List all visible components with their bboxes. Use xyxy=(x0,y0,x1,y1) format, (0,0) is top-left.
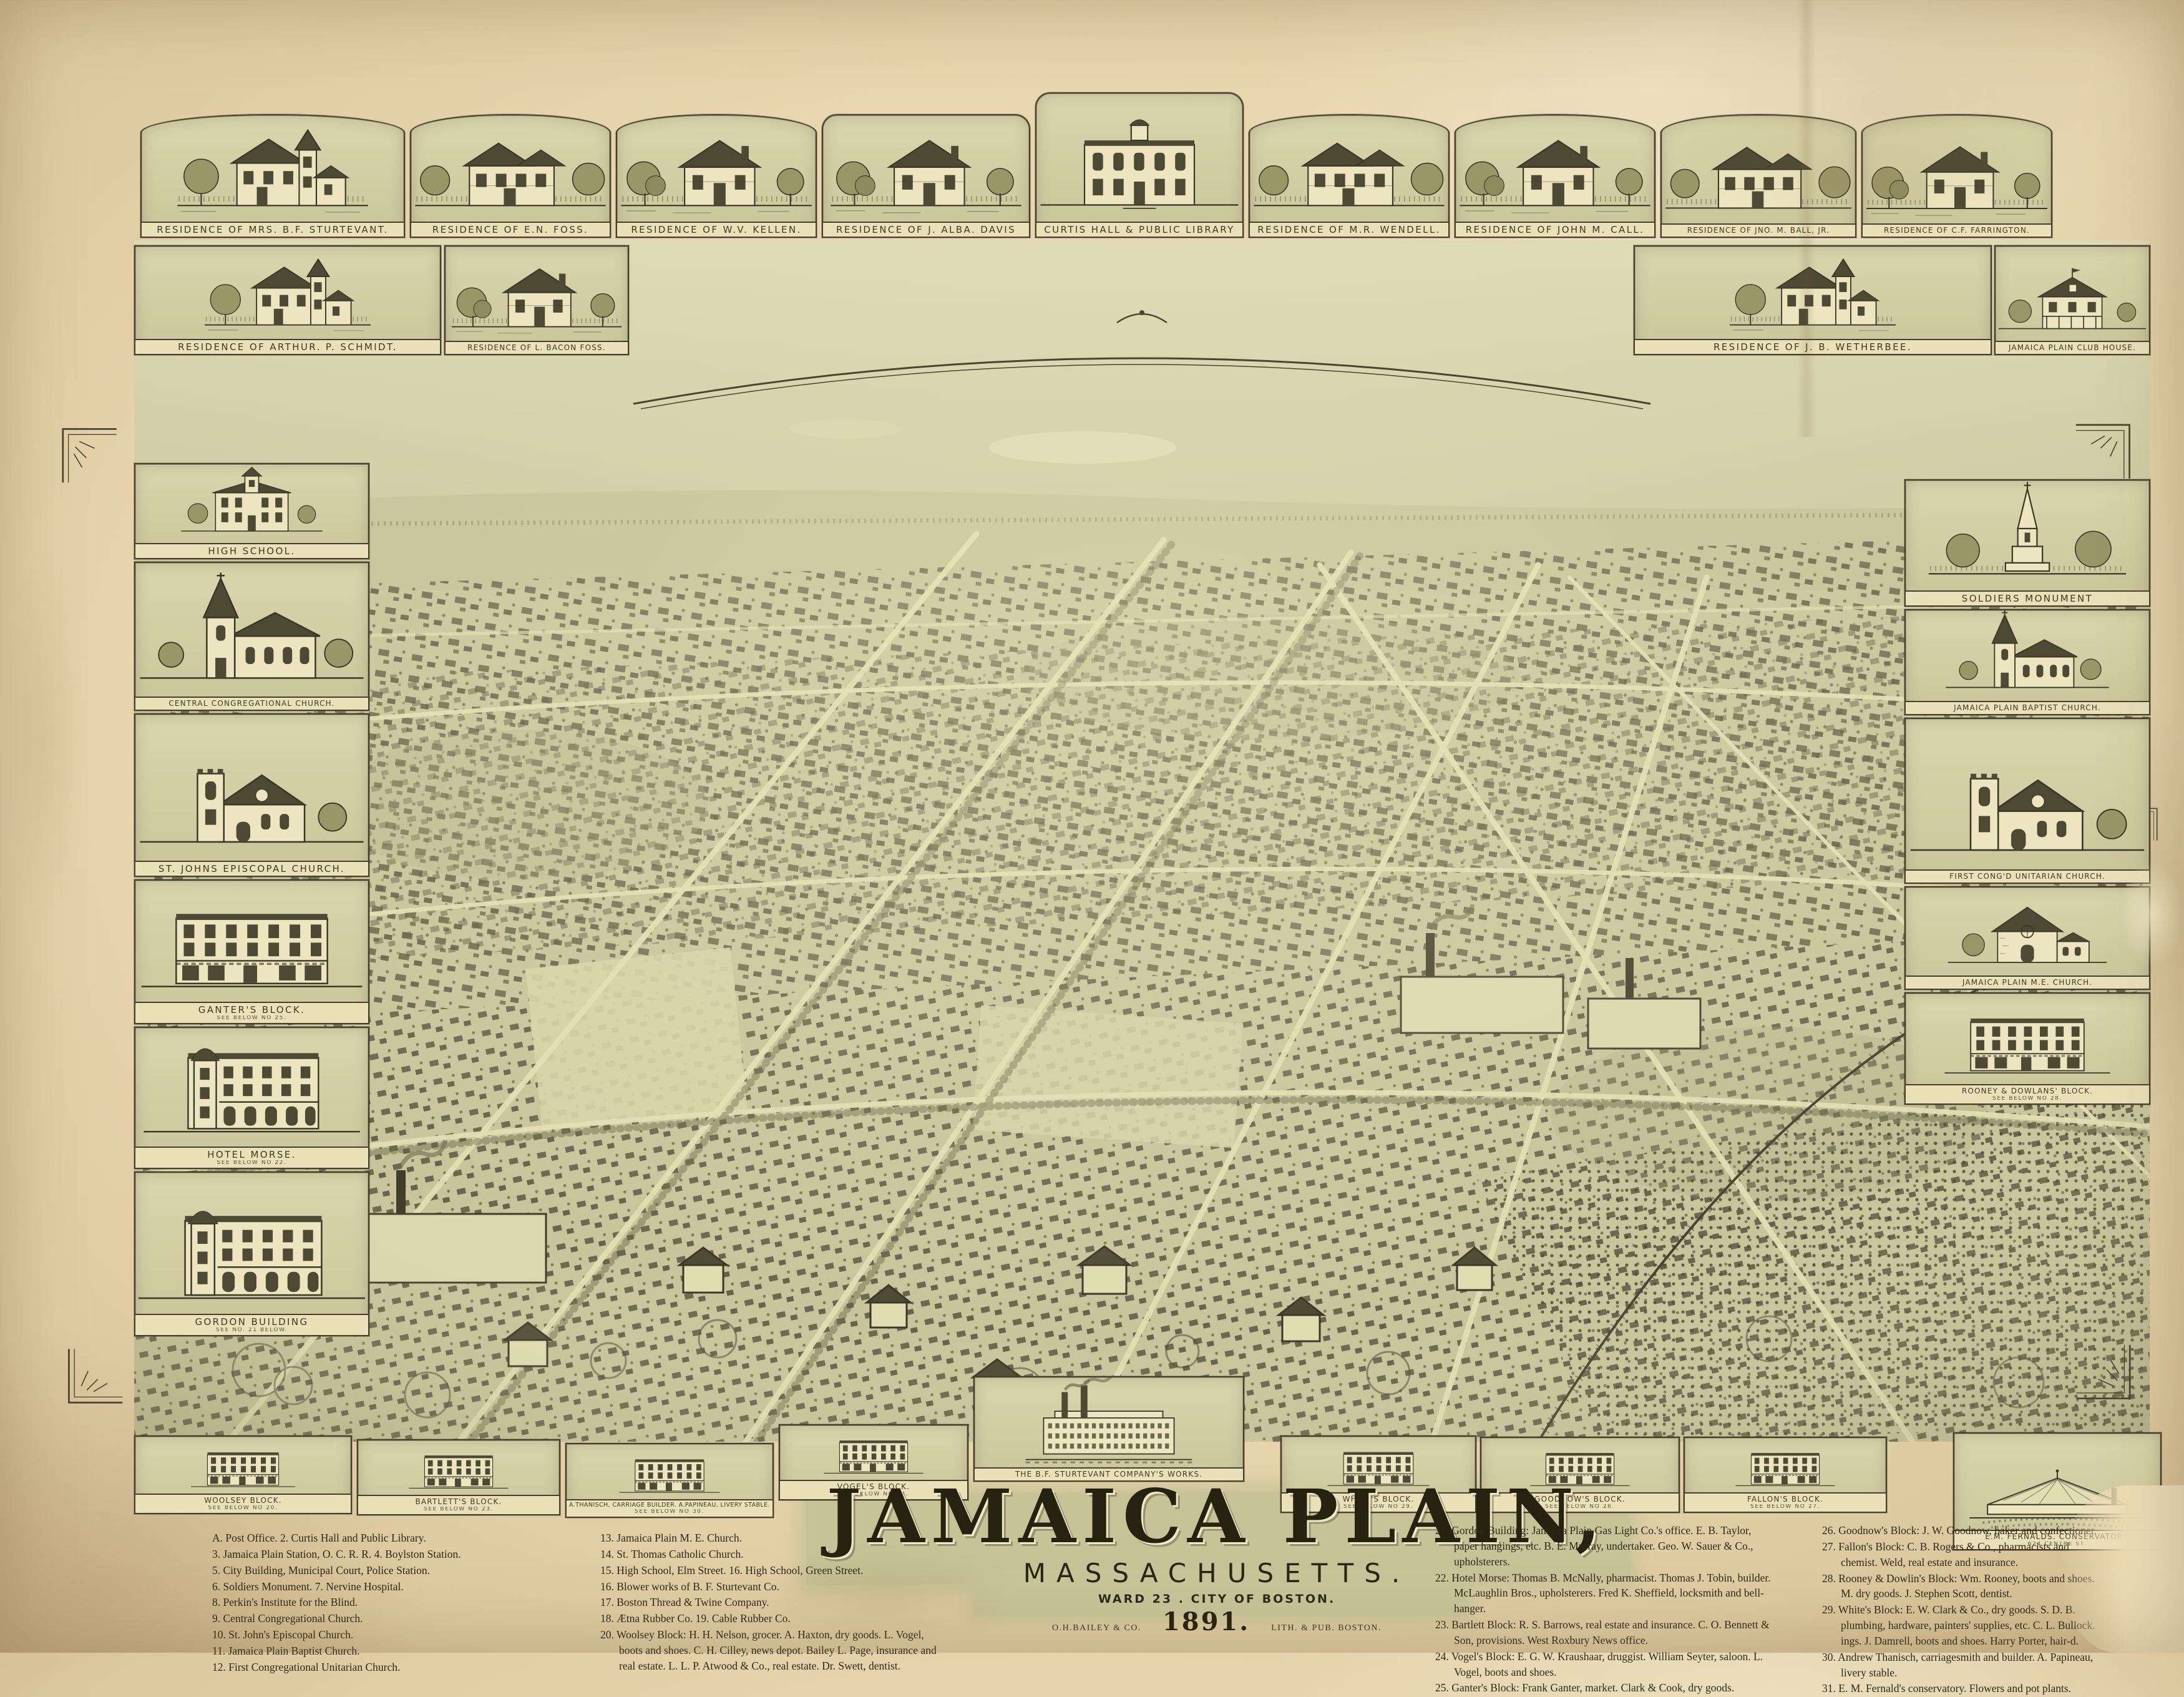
vignette-high-school: HIGH SCHOOL. xyxy=(134,463,369,559)
residence-illustration-icon xyxy=(446,247,628,341)
map-year: 1891. xyxy=(1163,1607,1250,1636)
commercial-block-illustration-icon xyxy=(135,1437,351,1494)
vignette-subcaption: SEE BELOW NO 27. xyxy=(1686,1504,1884,1510)
vignette-caption: A.THANISCH, CARRIAGE BUILDER. A.PAPINEAU… xyxy=(568,1502,771,1509)
vignette-fallons-block: FALLON'S BLOCK. SEE BELOW NO 27. xyxy=(1684,1437,1887,1513)
vignette-me-church: JAMAICA PLAIN M.E. CHURCH. xyxy=(1904,886,2150,990)
vignette-caption: GANTER'S BLOCK. xyxy=(137,1005,367,1015)
caption-strip: CURTIS HALL & PUBLIC LIBRARY xyxy=(1036,222,1242,237)
vignette-subcaption: SEE BELOW NO 28. xyxy=(1907,1096,2148,1102)
vignette-caption: RESIDENCE OF JNO. M. BALL, JR. xyxy=(1663,227,1854,235)
legend-entry: 11. Jamaica Plain Baptist Church. xyxy=(212,1643,543,1659)
caption-strip: HOTEL MORSE. SEE BELOW NO 22. xyxy=(135,1147,368,1168)
vignette-caption: BARTLETT'S BLOCK. xyxy=(359,1498,558,1507)
vignette-ganters-block: GANTER'S BLOCK. SEE BELOW NO 25. xyxy=(134,879,369,1024)
vignette-caption: FIRST CONG'D UNITARIAN CHURCH. xyxy=(1907,873,2148,881)
birdseye-map-illustration xyxy=(134,240,2150,1442)
legend-entry: 18. Ætna Rubber Co. 19. Cable Rubber Co. xyxy=(600,1611,937,1626)
monument-illustration-icon xyxy=(1906,481,2149,590)
caption-strip: RESIDENCE OF JOHN M. CALL. xyxy=(1456,222,1654,237)
vignette-caption: RESIDENCE OF J. B. WETHERBEE. xyxy=(1636,342,1989,353)
vignette-soldiers-monument: SOLDIERS MONUMENT xyxy=(1904,479,2150,607)
building-illustration-icon xyxy=(135,1173,368,1314)
caption-strip: JAMAICA PLAIN M.E. CHURCH. xyxy=(1906,976,2149,989)
residence-illustration-icon xyxy=(411,115,610,222)
caption-strip: GORDON BUILDING SEE NO. 21 BELOW. xyxy=(135,1314,368,1335)
vignette-caption: JAMAICA PLAIN CLUB HOUSE. xyxy=(1997,344,2148,353)
vignette-caption: CURTIS HALL & PUBLIC LIBRARY xyxy=(1038,225,1241,235)
caption-strip: RESIDENCE OF JNO. M. BALL, JR. xyxy=(1662,223,1855,237)
vignette-subcaption: SEE BELOW NO 25. xyxy=(137,1015,367,1022)
vignette-bartletts-block: BARTLETT'S BLOCK. SEE BELOW NO 23. xyxy=(357,1439,560,1515)
legend-entry: 13. Jamaica Plain M. E. Church. xyxy=(600,1530,937,1546)
vignette-subcaption: SEE BELOW NO 30. xyxy=(568,1509,771,1515)
vignette-residence-schmidt: RESIDENCE OF ARTHUR. P. SCHMIDT. xyxy=(134,245,441,355)
vignette-unitarian-church: FIRST CONG'D UNITARIAN CHURCH. xyxy=(1904,718,2150,884)
legend-entry: A. Post Office. 2. Curtis Hall and Publi… xyxy=(212,1530,543,1546)
caption-strip: RESIDENCE OF J. ALBA. DAVIS xyxy=(823,222,1029,237)
caption-strip: BARTLETT'S BLOCK. SEE BELOW NO 23. xyxy=(358,1495,559,1514)
vignette-caption: WOOLSEY BLOCK. xyxy=(137,1497,349,1505)
vignette-caption: JAMAICA PLAIN BAPTIST CHURCH. xyxy=(1907,704,2148,713)
vignette-caption: FALLON'S BLOCK. xyxy=(1686,1495,1884,1504)
vignette-caption: SOLDIERS MONUMENT xyxy=(1907,594,2148,604)
caption-strip: JAMAICA PLAIN CLUB HOUSE. xyxy=(1996,341,2149,354)
vignette-residence-bacon-foss: RESIDENCE OF L. BACON FOSS. xyxy=(444,245,629,355)
caption-strip: SOLDIERS MONUMENT xyxy=(1906,590,2149,605)
legend-entry: 31. E. M. Fernald's conservatory. Flower… xyxy=(1822,1681,2106,1696)
vignette-residence-ball: RESIDENCE OF JNO. M. BALL, JR. xyxy=(1660,114,1856,238)
vignette-caption: RESIDENCE OF L. BACON FOSS. xyxy=(447,344,626,353)
caption-strip: RESIDENCE OF E.N. FOSS. xyxy=(411,222,610,237)
club-house-illustration-icon xyxy=(1996,247,2149,341)
church-illustration-icon xyxy=(135,715,368,861)
vignette-subcaption: SEE BELOW NO 20. xyxy=(137,1505,349,1512)
factory-illustration-icon xyxy=(975,1377,1243,1467)
vignette-caption: RESIDENCE OF J. ALBA. DAVIS xyxy=(824,225,1028,235)
legend-entry: 15. High School, Elm Street. 16. High Sc… xyxy=(600,1563,937,1578)
vignette-caption: RESIDENCE OF MRS. B.F. STURTEVANT. xyxy=(143,225,402,235)
vignette-caption: RESIDENCE OF ARTHUR. P. SCHMIDT. xyxy=(137,342,439,353)
caption-strip: WOOLSEY BLOCK. SEE BELOW NO 20. xyxy=(135,1494,351,1513)
caption-strip: RESIDENCE OF J. B. WETHERBEE. xyxy=(1635,339,1991,354)
vignette-caption: RESIDENCE OF M.R. WENDELL. xyxy=(1251,225,1447,235)
publisher-left: O.H.BAILEY & CO. xyxy=(1052,1623,1141,1633)
publisher-right: LITH. & PUB. BOSTON. xyxy=(1271,1623,1382,1633)
caption-strip: HIGH SCHOOL. xyxy=(135,543,368,558)
caption-strip: RESIDENCE OF MRS. B.F. STURTEVANT. xyxy=(142,222,404,237)
legend-entry: 3. Jamaica Plain Station, O. C. R. R. 4.… xyxy=(212,1547,543,1562)
residence-illustration-icon xyxy=(1250,115,1448,222)
vignette-rooney-dowlans-block: ROONEY & DOWLANS' BLOCK. SEE BELOW NO 28… xyxy=(1904,992,2150,1105)
hotel-illustration-icon xyxy=(135,1028,368,1147)
legend-entry: 24. Vogel's Block: E. G. W. Kraushaar, d… xyxy=(1435,1649,1775,1680)
vignette-residence-davis: RESIDENCE OF J. ALBA. DAVIS xyxy=(822,114,1030,238)
legend-entry: 9. Central Congregational Church. xyxy=(212,1611,543,1626)
vignette-caption: RESIDENCE OF W.V. KELLEN. xyxy=(618,225,814,235)
legend-entry: 20. Woolsey Block: H. H. Nelson, grocer.… xyxy=(600,1627,937,1674)
public-library-illustration-icon xyxy=(1036,94,1242,222)
caption-strip: A.THANISCH, CARRIAGE BUILDER. A.PAPINEAU… xyxy=(567,1499,773,1517)
vignette-residence-call: RESIDENCE OF JOHN M. CALL. xyxy=(1455,114,1655,238)
corner-flourish-icon xyxy=(59,1339,128,1408)
legend-column-2: 13. Jamaica Plain M. E. Church. 14. St. … xyxy=(600,1530,937,1675)
caption-strip: FIRST CONG'D UNITARIAN CHURCH. xyxy=(1906,869,2149,883)
legend-column-1: A. Post Office. 2. Curtis Hall and Publi… xyxy=(212,1530,543,1676)
commercial-block-illustration-icon xyxy=(1685,1438,1886,1492)
vignette-caption: HIGH SCHOOL. xyxy=(137,546,367,557)
church-illustration-icon xyxy=(1906,888,2149,976)
residence-illustration-icon xyxy=(1456,115,1654,222)
vignette-hotel-morse: HOTEL MORSE. SEE BELOW NO 22. xyxy=(134,1027,369,1169)
vignette-thanisch-carriage: A.THANISCH, CARRIAGE BUILDER. A.PAPINEAU… xyxy=(565,1443,774,1518)
commercial-block-illustration-icon xyxy=(358,1440,559,1495)
vignette-st-johns-episcopal-church: ST. JOHNS EPISCOPAL CHURCH. xyxy=(134,713,369,877)
legend-entry: 10. St. John's Episcopal Church. xyxy=(212,1627,543,1643)
vignette-caption: ROONEY & DOWLANS' BLOCK. xyxy=(1907,1087,2148,1096)
legend-entry: 6. Soldiers Monument. 7. Nervine Hospita… xyxy=(212,1579,543,1595)
caption-strip: RESIDENCE OF ARTHUR. P. SCHMIDT. xyxy=(135,339,440,354)
vignette-residence-wendell: RESIDENCE OF M.R. WENDELL. xyxy=(1249,114,1450,238)
vignette-sturtevant-works: THE B.F. STURTEVANT COMPANY'S WORKS. xyxy=(973,1376,1244,1482)
vignette-subcaption: SEE BELOW NO 23. xyxy=(359,1507,558,1513)
vignette-caption: RESIDENCE OF JOHN M. CALL. xyxy=(1457,225,1653,235)
corner-flourish-icon xyxy=(2070,419,2139,488)
vignette-central-congregational-church: CENTRAL CONGREGATIONAL CHURCH. xyxy=(134,562,369,711)
vignette-club-house: JAMAICA PLAIN CLUB HOUSE. xyxy=(1994,245,2150,355)
caption-strip: JAMAICA PLAIN BAPTIST CHURCH. xyxy=(1906,701,2149,714)
vignette-caption: HOTEL MORSE. xyxy=(137,1150,367,1160)
residence-illustration-icon xyxy=(1863,115,2051,223)
church-illustration-icon xyxy=(135,563,368,697)
commercial-block-illustration-icon xyxy=(780,1426,967,1480)
legend-entry: 8. Perkin's Institute for the Blind. xyxy=(212,1595,543,1610)
legend-entry: 12. First Congregational Unitarian Churc… xyxy=(212,1660,543,1675)
legend-column-3: 21. Gordon Building: Jamaica Plain Gas L… xyxy=(1435,1523,1775,1696)
paper-tear xyxy=(2060,1485,2184,1653)
corner-flourish-icon xyxy=(2067,1339,2135,1408)
residence-illustration-icon xyxy=(1662,115,1855,223)
scanned-map-sheet: { "palette": { "paper": "#e8d6af", "map_… xyxy=(0,0,2184,1653)
vignette-caption: RESIDENCE OF C.F. FARRINGTON. xyxy=(1864,227,2050,235)
caption-strip: ROONEY & DOWLANS' BLOCK. SEE BELOW NO 28… xyxy=(1906,1084,2149,1103)
vignette-residence-kellen: RESIDENCE OF W.V. KELLEN. xyxy=(616,114,817,238)
legend-entry: 14. St. Thomas Catholic Church. xyxy=(600,1547,937,1562)
vignette-subcaption: SEE BELOW NO 22. xyxy=(137,1160,367,1166)
vignette-caption: CENTRAL CONGREGATIONAL CHURCH. xyxy=(137,700,367,708)
vignette-subcaption: SEE NO. 21 BELOW. xyxy=(137,1328,367,1334)
legend-entry: 17. Boston Thread & Twine Company. xyxy=(600,1595,937,1610)
caption-strip: RESIDENCE OF M.R. WENDELL. xyxy=(1250,222,1448,237)
legend-entry: 22. Hotel Morse: Thomas B. McNally, phar… xyxy=(1435,1570,1775,1617)
vignette-baptist-church: JAMAICA PLAIN BAPTIST CHURCH. xyxy=(1904,609,2150,715)
vignette-caption: RESIDENCE OF E.N. FOSS. xyxy=(412,225,608,235)
vignette-woolsey-block: WOOLSEY BLOCK. SEE BELOW NO 20. xyxy=(134,1435,352,1514)
legend-entry: 5. City Building, Municipal Court, Polic… xyxy=(212,1563,543,1578)
school-illustration-icon xyxy=(135,464,368,543)
residence-illustration-icon xyxy=(1635,247,1991,339)
residence-illustration-icon xyxy=(135,247,440,339)
caption-strip: RESIDENCE OF C.F. FARRINGTON. xyxy=(1863,223,2051,237)
legend-entry: 30. Andrew Thanisch, carriagesmith and b… xyxy=(1822,1650,2106,1681)
commercial-block-illustration-icon xyxy=(1906,994,2149,1084)
residence-illustration-icon xyxy=(142,115,404,222)
vignette-caption: ST. JOHNS EPISCOPAL CHURCH. xyxy=(137,864,367,874)
legend-entry: 21. Gordon Building: Jamaica Plain Gas L… xyxy=(1435,1523,1775,1570)
legend-entry: 29. White's Block: E. W. Clark & Co., dr… xyxy=(1822,1602,2106,1649)
carriage-shop-illustration-icon xyxy=(567,1444,773,1499)
caption-strip: FALLON'S BLOCK. SEE BELOW NO 27. xyxy=(1685,1492,1886,1512)
residence-illustration-icon xyxy=(823,115,1029,222)
vignette-gordon-building: GORDON BUILDING SEE NO. 21 BELOW. xyxy=(134,1171,369,1336)
paper-stain xyxy=(0,549,87,924)
caption-strip: RESIDENCE OF W.V. KELLEN. xyxy=(617,222,816,237)
caption-strip: RESIDENCE OF L. BACON FOSS. xyxy=(446,341,628,354)
vignette-curtis-hall: CURTIS HALL & PUBLIC LIBRARY xyxy=(1035,92,1244,238)
legend-entry: 26. Goodnow's Block: J. W. Goodnow, bake… xyxy=(1822,1523,2106,1538)
legend-entry: 16. Blower works of B. F. Sturtevant Co. xyxy=(600,1579,937,1595)
legend-entry: 23. Bartlett Block: R. S. Barrows, real … xyxy=(1435,1617,1775,1648)
caption-strip: CENTRAL CONGREGATIONAL CHURCH. xyxy=(135,697,368,710)
residence-illustration-icon xyxy=(617,115,816,222)
vignette-caption: JAMAICA PLAIN M.E. CHURCH. xyxy=(1907,979,2148,987)
commercial-block-illustration-icon xyxy=(135,881,368,1002)
vignette-residence-farrington: RESIDENCE OF C.F. FARRINGTON. xyxy=(1861,114,2052,238)
corner-flourish-icon xyxy=(57,419,126,488)
vignette-residence-sturtevant: RESIDENCE OF MRS. B.F. STURTEVANT. xyxy=(140,114,405,238)
church-illustration-icon xyxy=(1906,610,2149,701)
caption-strip: GANTER'S BLOCK. SEE BELOW NO 25. xyxy=(135,1002,368,1023)
caption-strip: ST. JOHNS EPISCOPAL CHURCH. xyxy=(135,861,368,876)
legend-entry: 25. Ganter's Block: Frank Ganter, market… xyxy=(1435,1680,1775,1696)
vignette-caption: GORDON BUILDING xyxy=(137,1317,367,1328)
church-illustration-icon xyxy=(1906,719,2149,869)
vignette-residence-wetherbee: RESIDENCE OF J. B. WETHERBEE. xyxy=(1634,245,1992,355)
vignette-residence-foss: RESIDENCE OF E.N. FOSS. xyxy=(410,114,611,238)
